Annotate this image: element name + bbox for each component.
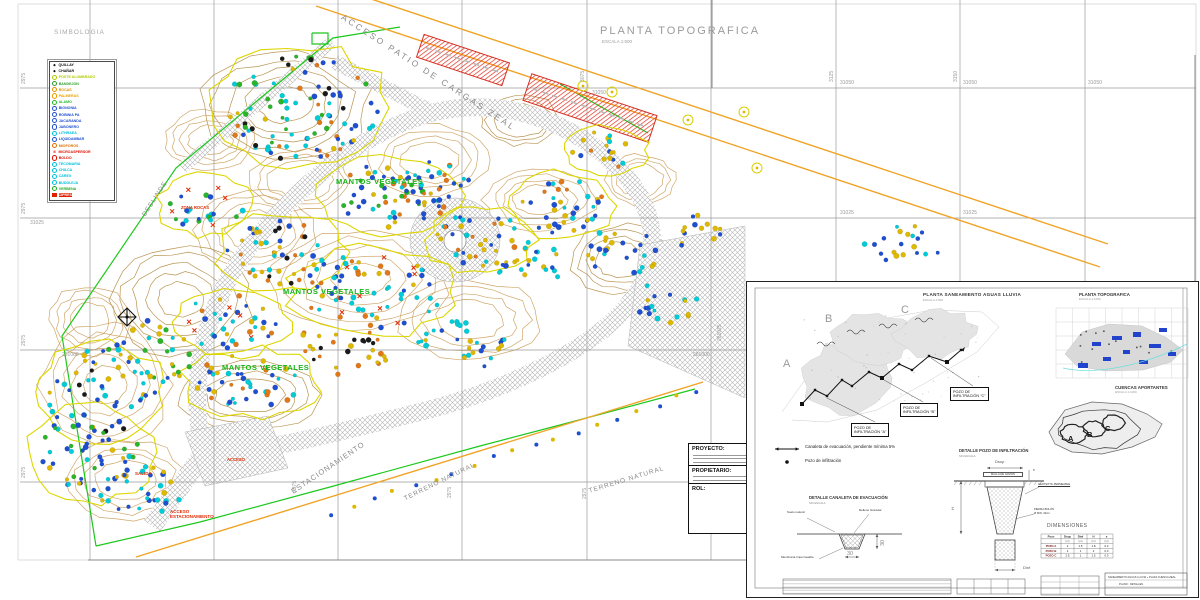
svg-text:0.3: 0.3 [1105, 544, 1109, 548]
pozo-label: POZO DE INFILTRACIÓN "C" [950, 387, 989, 401]
inset-legend-canaleta: Canaleta de evacuación, pendiente mínima… [805, 445, 895, 450]
pozo-detail-scale: SIN ESCALA [959, 455, 975, 458]
legend-symbol-icon [52, 75, 57, 80]
svg-text:2: 2 [1067, 544, 1069, 548]
cuenca-letter: C [1105, 425, 1110, 434]
svg-text:1.8: 1.8 [1092, 544, 1096, 548]
label-malla-gavion: MALLA DE GAVIÓN [983, 472, 1023, 477]
map-label: ZONA ROCAS [181, 206, 209, 211]
grid-coordinate-label: 31025 [840, 211, 854, 217]
basin-letter: C [901, 304, 909, 317]
svg-text:e: e [1106, 534, 1108, 538]
map-label: MANTOS VEGETALES [283, 288, 370, 296]
svg-text:POZO A: POZO A [1046, 544, 1057, 548]
inset-plan-scale: ESCALA 1:500 [923, 299, 943, 302]
legend-symbol-icon [52, 81, 57, 86]
legend-item-label: CHAÑAR [59, 69, 75, 73]
svg-text:1.5: 1.5 [1079, 544, 1083, 548]
svg-text:1: 1 [1080, 549, 1082, 553]
legend-symbol-icon [52, 168, 57, 173]
inset-plan-title: PLANTA SANEAMIENTO AGUAS LLUVIA [923, 292, 1021, 297]
dimensions-title: DIMENSIONES [1047, 524, 1088, 530]
canaleta-detail-scale: SIN ESCALA [809, 502, 825, 505]
legend-item-label: ROCAS [59, 88, 72, 92]
drawing-scale: ESCALA 1:500 [602, 39, 632, 44]
label-piedra-diam: Ø MIN. 30cm [1034, 512, 1050, 515]
legend-symbol-icon [52, 124, 57, 129]
svg-text:H: H [1092, 534, 1094, 538]
svg-text:1.5: 1.5 [1092, 554, 1096, 558]
grid-coordinate-label: 2975 [22, 467, 28, 478]
grid-coordinate-label: 3125 [830, 71, 836, 82]
legend-item-label: MICROASPERSOR [59, 150, 91, 154]
grid-coordinate-label: 261000 [693, 353, 710, 359]
svg-text:0.3: 0.3 [1105, 554, 1109, 558]
legend-item-label: VERBENA [59, 187, 77, 191]
legend-item-label: BOLDO [59, 156, 72, 160]
legend-symbol-icon [52, 106, 57, 111]
grid-coordinate-label: 31050 [963, 81, 977, 87]
legend-item: CIPRES [50, 192, 114, 198]
map-label: ACCESO ESTACIONAMIENTO [170, 509, 214, 519]
svg-text:(m): (m) [1091, 539, 1095, 543]
legend-item-label: LITHRAEA [59, 131, 77, 135]
legend-item-label: ALAMO [59, 100, 72, 104]
grid-coordinate-label: 31025 [30, 221, 44, 227]
svg-text:2: 2 [1067, 549, 1069, 553]
map-label: ACCESO [227, 458, 245, 463]
legend-item-label: CIPRES [59, 193, 72, 197]
legend-item-label: CAREX [59, 174, 72, 178]
legend-item-label: POSTE ALUMBRADO [59, 75, 96, 79]
legend-symbol-icon [52, 174, 57, 179]
legend-item-label: JACARANDA [59, 119, 82, 123]
svg-text:(m): (m) [1104, 539, 1108, 543]
cuenca-letter: A [1068, 435, 1073, 444]
mini-topo-scale: ESCALA 1:1000 [1079, 298, 1101, 301]
legend-symbol-icon [52, 180, 57, 185]
legend-title: SIMBOLOGIA [54, 29, 105, 36]
legend-item-label: BUDDLEJA [59, 181, 79, 185]
legend-symbol-icon [52, 143, 57, 148]
svg-text:POZO B: POZO B [1046, 549, 1057, 553]
detail-drawings: PozoDsupDinfHe(m)(m)(m)(m)POZO A21.51.80… [755, 288, 1188, 595]
svg-text:2.5: 2.5 [1066, 554, 1070, 558]
label-geotextil: GEOTEXTIL PERMEABLE [1038, 483, 1070, 486]
legend-items: ◆QUILLAY◆CHAÑARPOSTE ALUMBRADOBANDEJONRO… [50, 62, 114, 198]
symbol-legend: ◆QUILLAY◆CHAÑARPOSTE ALUMBRADOBANDEJONRO… [49, 61, 115, 201]
grid-coordinate-label: 31050 [592, 91, 606, 97]
drawing-title: PLANTA TOPOGRAFICA [600, 25, 760, 37]
legend-item-label: LIQUIDAMBAR [59, 137, 85, 141]
map-label: SALIDA [135, 471, 152, 476]
cuenca-letter: B [1087, 431, 1092, 440]
legend-item-label: QUILLAY [59, 63, 74, 67]
grid-coordinate-label: 261025 [718, 324, 724, 341]
svg-text:Dsup: Dsup [1064, 534, 1071, 538]
inset-legend-pozo: Pozo de infiltración [805, 459, 841, 464]
basin-letter: B [825, 313, 832, 326]
legend-item-label: CHILCA [59, 168, 73, 172]
legend-item-label: BANDEJON [59, 82, 79, 86]
legend-item-label: PALMERAS [59, 94, 79, 98]
legend-symbol-icon: ◆ [52, 69, 57, 73]
svg-text:Pozo: Pozo [1048, 534, 1055, 538]
pozo-label: POZO DE INFILTRACIÓN "B" [900, 403, 938, 417]
legend-symbol-icon: ⊗ [52, 149, 57, 154]
grid-coordinate-label: 2975 [22, 73, 28, 84]
svg-text:(m): (m) [1065, 539, 1069, 543]
grid-coordinate-label: 31050 [1088, 81, 1102, 87]
legend-symbol-icon [52, 162, 57, 167]
map-label: MANTOS VEGETALES [222, 364, 309, 372]
grid-coordinate-label: 261000 [62, 353, 79, 359]
grid-coordinate-label: 3075 [581, 71, 587, 82]
svg-text:POZO C: POZO C [1046, 554, 1057, 558]
legend-symbol-icon: ◆ [52, 63, 57, 67]
grid-coordinate-label: 2975 [583, 488, 589, 499]
legend-item-label: JABONERO [59, 125, 79, 129]
legend-symbol-icon [52, 87, 57, 92]
grid-coordinate-label: 3150 [954, 71, 960, 82]
grid-coordinate-label: 31050 [840, 81, 854, 87]
dim-30-vertical: 30 [880, 540, 886, 546]
legend-symbol-icon [52, 131, 57, 136]
dim-dsup: Dsup [995, 460, 1004, 465]
grid-coordinate-label: 2975 [22, 203, 28, 214]
grid-coordinate-label: 31025 [963, 211, 977, 217]
svg-text:Dinf: Dinf [1078, 534, 1084, 538]
svg-text:(m): (m) [1078, 539, 1082, 543]
legend-symbol-icon [52, 137, 57, 142]
legend-symbol-icon [52, 193, 57, 197]
basin-letter: A [783, 358, 790, 371]
dim-30-horizontal: 30 [847, 551, 853, 557]
label-membrana: Membrana Impermeable [781, 556, 814, 559]
legend-item-label: MIOPOROS [59, 144, 79, 148]
legend-symbol-icon [52, 186, 57, 191]
label-piedra-bolon: PIEDRA BOLÓN [1034, 508, 1054, 511]
dim-e: e [1033, 468, 1035, 472]
grid-coordinate-label: 2975 [448, 487, 454, 498]
map-label: MANTOS VEGETALES [336, 178, 423, 186]
svg-text:1: 1 [1080, 554, 1082, 558]
svg-text:SANEAMIENTO AGUAS LLUVIA + PLA: SANEAMIENTO AGUAS LLUVIA + PLAZA CUENCA … [1108, 575, 1176, 579]
cad-sheet: DESLINDEMANTOS VEGETALESMANTOS VEGETALES… [0, 0, 1200, 600]
legend-symbol-icon [52, 112, 57, 117]
cuencas-scale: ESCALA 1:1000 [1115, 391, 1137, 394]
pozo-label: POZO DE INFILTRACIÓN "A" [851, 423, 889, 437]
label-suelo-natural: Suelo natural [787, 511, 805, 514]
svg-text:PLANO : DETALLES: PLANO : DETALLES [1119, 582, 1143, 586]
legend-symbol-icon [52, 100, 57, 105]
label-relleno-granular: Relleno Granular [859, 509, 882, 512]
legend-item-label: ROBINIA PA [59, 113, 80, 117]
dim-dinf: Dinf [1023, 566, 1030, 571]
legend-symbol-icon [52, 93, 57, 98]
svg-text:0.3: 0.3 [1105, 549, 1109, 553]
grid-coordinate-label: 2975 [22, 335, 28, 346]
dim-h: H [951, 507, 956, 510]
legend-item-label: TECOMARIA [59, 162, 81, 166]
legend-symbol-icon [52, 118, 57, 123]
legend-symbol-icon [52, 155, 57, 160]
legend-item-label: BIGNONIA [59, 106, 77, 110]
grid-coordinate-label: 2975 [293, 481, 299, 492]
svg-text:2: 2 [1093, 549, 1095, 553]
detail-sheet-overlay: PozoDsupDinfHe(m)(m)(m)(m)POZO A21.51.80… [746, 281, 1199, 598]
detail-sheet-canvas: PozoDsupDinfHe(m)(m)(m)(m)POZO A21.51.80… [747, 282, 1198, 597]
